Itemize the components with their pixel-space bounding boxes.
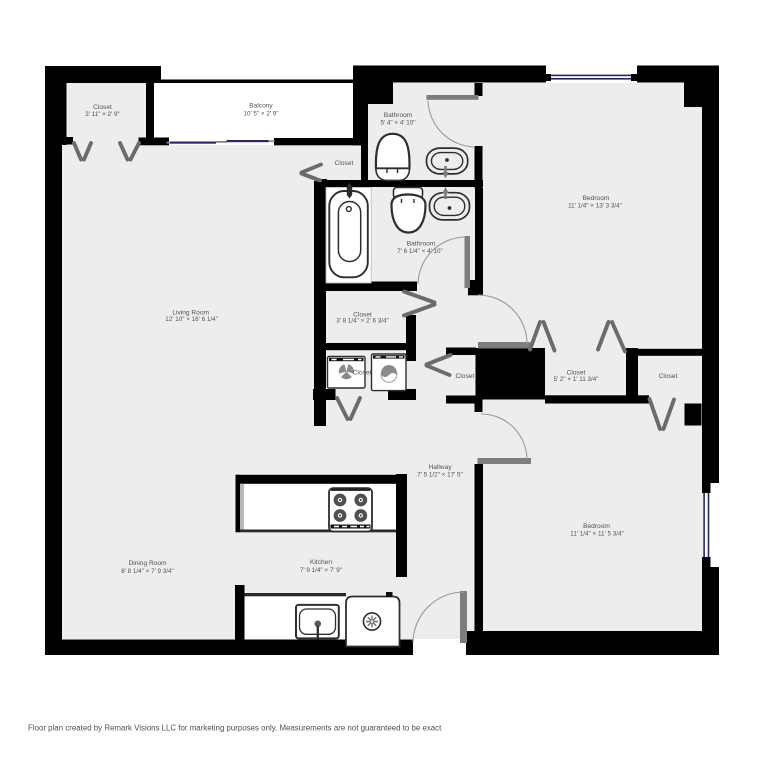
- svg-text:Closet: Closet: [335, 160, 354, 167]
- svg-text:11' 1/4" × 13' 3 3/4": 11' 1/4" × 13' 3 3/4": [568, 202, 622, 209]
- svg-text:5' 4" × 4' 10": 5' 4" × 4' 10": [380, 119, 415, 126]
- svg-text:Bathroom: Bathroom: [384, 112, 413, 119]
- svg-text:Closet: Closet: [456, 373, 475, 380]
- svg-text:Balcony: Balcony: [249, 103, 273, 110]
- svg-text:7' 5 1/2" × 17' 5": 7' 5 1/2" × 17' 5": [417, 472, 463, 479]
- svg-text:3' 8 1/4" × 2' 6 3/4": 3' 8 1/4" × 2' 6 3/4": [336, 318, 389, 325]
- svg-text:Closet: Closet: [659, 373, 678, 380]
- svg-text:Dining Room: Dining Room: [128, 560, 167, 567]
- svg-text:5' 2" × 1' 11 3/4": 5' 2" × 1' 11 3/4": [553, 376, 598, 383]
- svg-text:8' 8 1/4" × 7' 9 3/4": 8' 8 1/4" × 7' 9 3/4": [121, 568, 174, 575]
- svg-text:Hallway: Hallway: [428, 464, 452, 471]
- svg-text:Bedroom: Bedroom: [583, 523, 610, 530]
- svg-text:Floor plan created by Remark V: Floor plan created by Remark Visions LLC…: [28, 724, 442, 733]
- svg-text:Bedroom: Bedroom: [583, 195, 610, 202]
- svg-text:7' 6 1/4" × 4' 10": 7' 6 1/4" × 4' 10": [397, 248, 443, 255]
- svg-text:3' 11" × 2' 9": 3' 11" × 2' 9": [85, 111, 120, 118]
- svg-text:7' 9 1/4" × 7' 9": 7' 9 1/4" × 7' 9": [300, 567, 342, 574]
- svg-text:10' 5" × 2' 9": 10' 5" × 2' 9": [243, 110, 278, 117]
- svg-text:Closet: Closet: [353, 370, 372, 377]
- svg-text:Bathroom: Bathroom: [407, 241, 436, 248]
- svg-text:11' 1/4" × 11' 5 3/4": 11' 1/4" × 11' 5 3/4": [570, 530, 623, 537]
- svg-text:12' 10" × 16' 6 1/4": 12' 10" × 16' 6 1/4": [165, 316, 218, 323]
- svg-text:Kitchen: Kitchen: [310, 559, 332, 566]
